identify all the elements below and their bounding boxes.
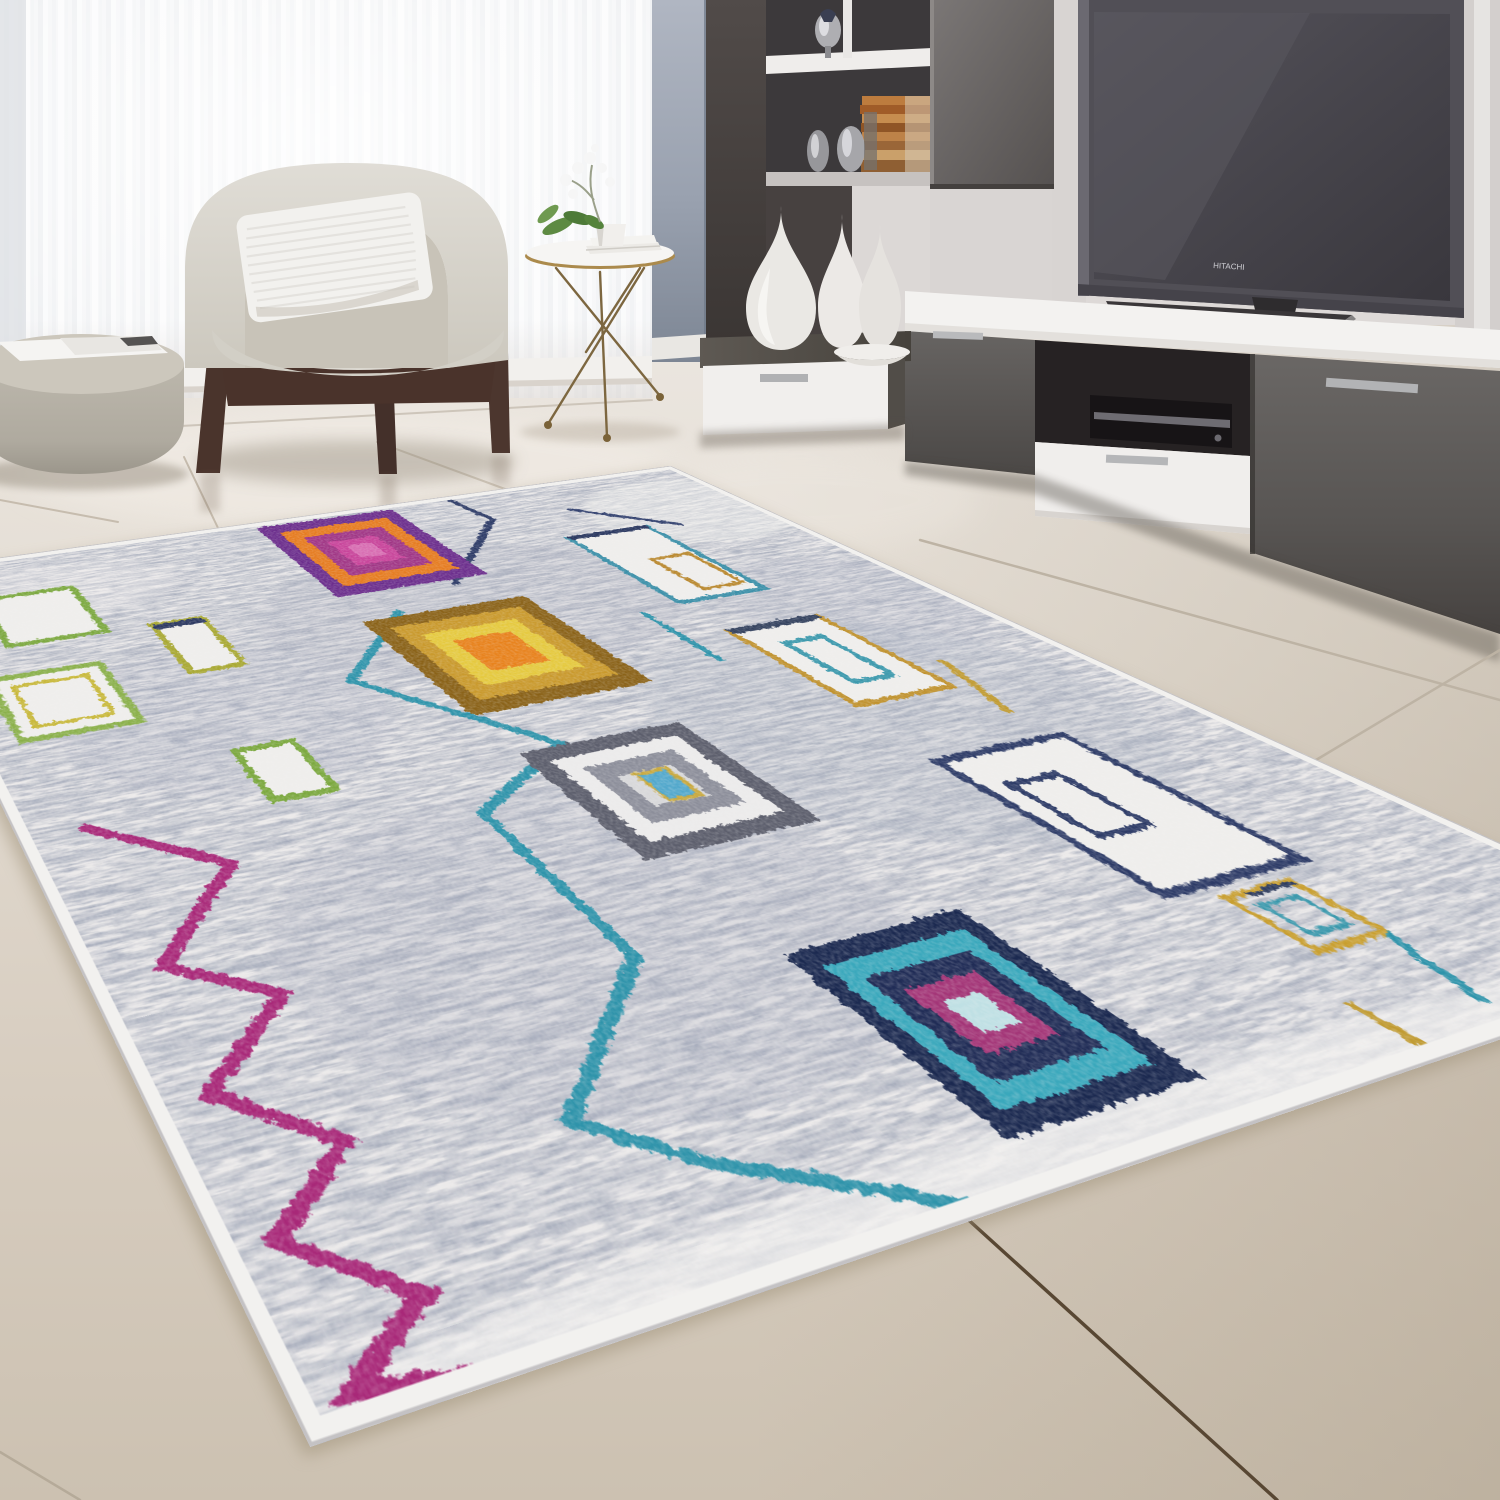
svg-text:HITACHI: HITACHI	[1213, 261, 1245, 272]
